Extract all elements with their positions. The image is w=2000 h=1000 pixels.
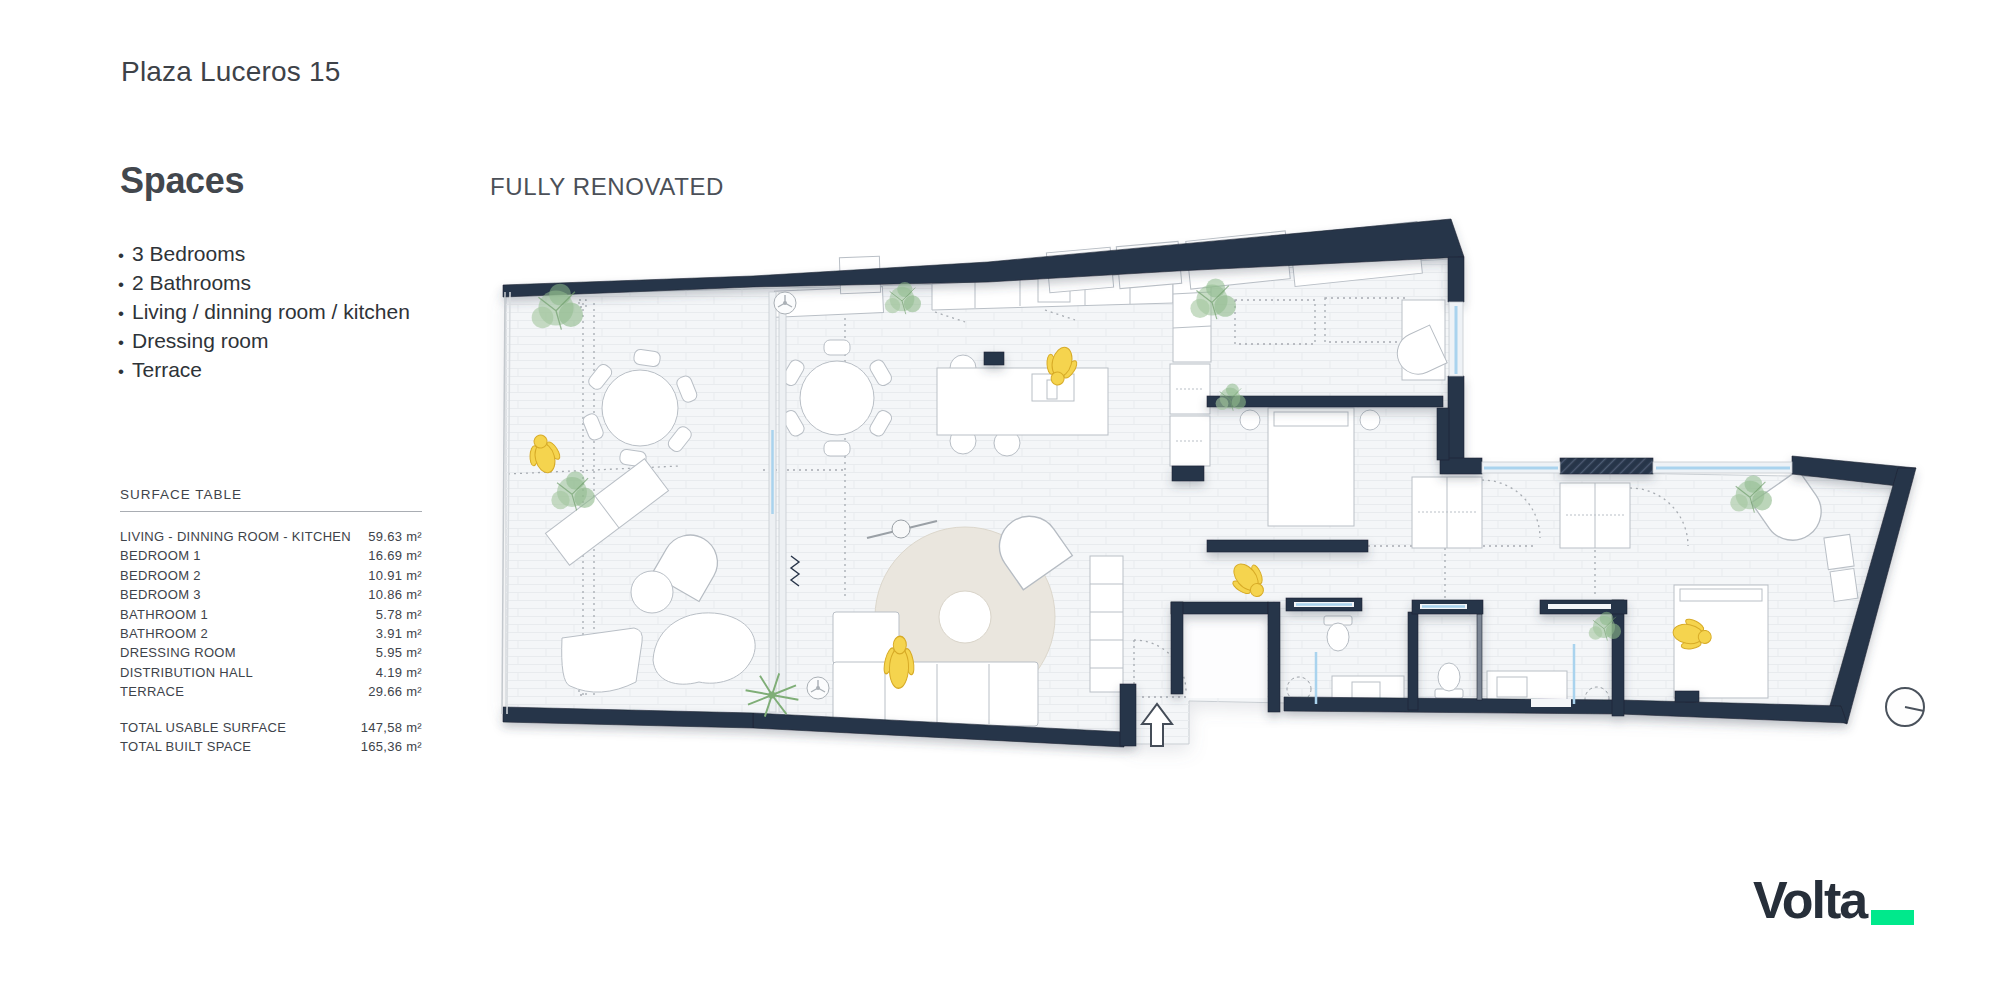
hall-left-wall xyxy=(1171,602,1183,694)
hall-right-wall xyxy=(1268,602,1280,712)
floor-plan xyxy=(0,0,2000,1000)
brand-logo: Volta xyxy=(1753,874,1914,926)
ceiling-fan-icon xyxy=(807,677,829,699)
bookshelf xyxy=(1090,556,1123,692)
wall-tab xyxy=(1675,691,1699,702)
ceiling-fan-icon xyxy=(774,292,796,314)
entrance-jamb xyxy=(1120,684,1136,746)
hall-top-wall xyxy=(1171,602,1268,614)
kitchen-hob xyxy=(984,352,1004,365)
wing-top-wall-a xyxy=(1440,458,1482,474)
north-indicator-icon xyxy=(1886,688,1924,726)
wing-top-wall-b xyxy=(1560,458,1653,474)
logo-underscore-icon xyxy=(1871,910,1914,925)
east-wall-lower xyxy=(1448,376,1464,466)
bath-divider-2 xyxy=(1477,614,1482,700)
logo-wordmark: Volta xyxy=(1753,874,1866,926)
terrace-side-table xyxy=(631,571,673,613)
distribution-hall-floor xyxy=(1183,612,1267,698)
wardrobe-wall xyxy=(1172,466,1204,481)
bath-divider-1 xyxy=(1408,612,1418,710)
terrace-corner-chair xyxy=(562,628,643,692)
east-wall-upper xyxy=(1448,257,1464,302)
bedroom2-wall xyxy=(1612,600,1624,716)
bedroom1-south-wall xyxy=(1207,540,1368,552)
bedroom1-east-wall xyxy=(1437,408,1449,460)
